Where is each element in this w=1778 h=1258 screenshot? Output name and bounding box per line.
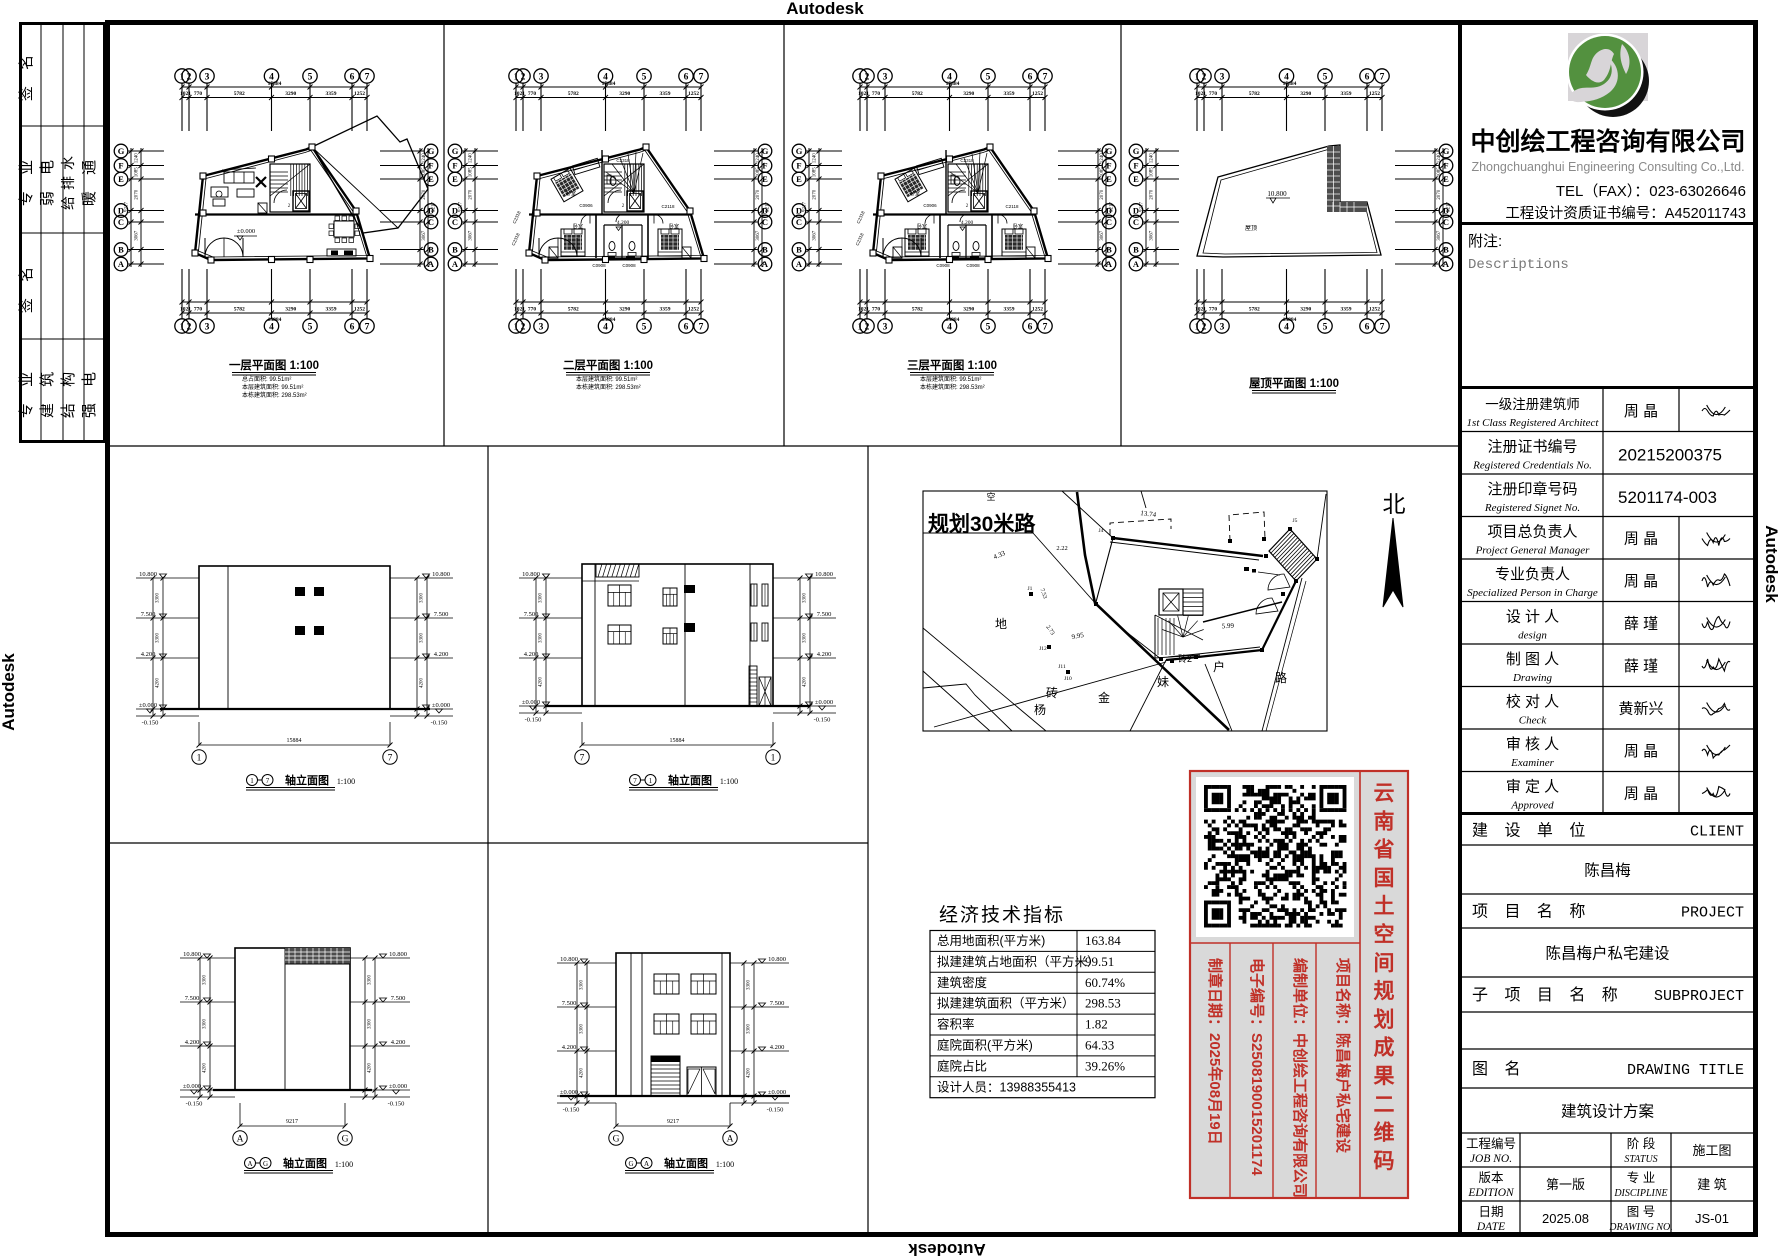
svg-text:周 晶: 周 晶 [1624,531,1658,548]
svg-text:北: 北 [1383,491,1406,517]
svg-text:1:100: 1:100 [337,777,355,786]
svg-text:3290: 3290 [619,91,630,97]
svg-text:4.200: 4.200 [617,220,630,226]
svg-text:10.800: 10.800 [1267,190,1287,198]
svg-text:5: 5 [642,73,647,83]
svg-text:3067: 3067 [135,230,140,241]
svg-text:99.51: 99.51 [1085,954,1114,969]
svg-text:DRAWING NO.: DRAWING NO. [1608,1222,1673,1233]
svg-text:5782: 5782 [568,307,579,313]
svg-text:7: 7 [633,777,637,785]
svg-text:陈昌梅户私宅建设: 陈昌梅户私宅建设 [1545,945,1669,963]
svg-text:7: 7 [266,777,270,785]
svg-text:本栋建筑面积: 298.53m²: 本栋建筑面积: 298.53m² [920,383,985,391]
svg-text:3067: 3067 [469,230,474,241]
svg-text:E: E [1133,174,1139,184]
svg-text:B: B [118,245,124,255]
svg-text:5782: 5782 [234,91,245,97]
svg-text:间: 间 [1374,952,1395,975]
svg-text:1240: 1240 [469,153,474,164]
svg-text:4200: 4200 [803,677,808,688]
svg-text:B: B [1443,245,1449,255]
svg-text:A: A [1133,259,1140,269]
svg-text:64.33: 64.33 [1085,1038,1114,1053]
svg-text:C2318: C2318 [616,158,630,163]
svg-text:2025.08: 2025.08 [1542,1211,1589,1226]
svg-text:本栋建筑面积: 298.53m²: 本栋建筑面积: 298.53m² [576,383,641,391]
svg-text:±0.000: ±0.000 [183,1083,201,1090]
svg-text:C2118: C2118 [662,204,675,209]
svg-text:3067: 3067 [1100,230,1105,241]
svg-text:1252: 1252 [688,91,699,97]
svg-text:Descriptions: Descriptions [1468,257,1569,273]
svg-text:卧室: 卧室 [1013,223,1023,230]
svg-text:5782: 5782 [912,307,923,313]
svg-text:E: E [428,174,434,184]
svg-text:C0908: C0908 [966,263,980,268]
svg-text:4200: 4200 [539,677,544,688]
svg-text:轴立面图: 轴立面图 [664,1156,708,1170]
svg-text:1st Class Registered Architect: 1st Class Registered Architect [1467,417,1600,429]
svg-text:Autodesk: Autodesk [908,1240,986,1258]
svg-text:一级注册建筑师: 一级注册建筑师 [1485,397,1580,412]
svg-text:码: 码 [1374,1150,1395,1173]
svg-text:Project General Manager: Project General Manager [1475,545,1591,557]
svg-text:-0.150: -0.150 [388,1101,405,1108]
svg-text:PROJECT: PROJECT [1681,905,1744,922]
svg-text:4: 4 [269,323,274,333]
svg-text:298.53: 298.53 [1085,996,1121,1011]
svg-text:4.200: 4.200 [961,220,974,226]
svg-text:E: E [796,174,802,184]
svg-text:专 业: 专 业 [18,366,35,418]
svg-text:5: 5 [1323,73,1328,83]
svg-text:3300: 3300 [156,633,161,644]
svg-text:6: 6 [1365,73,1370,83]
svg-text:轴立面图: 轴立面图 [668,773,712,787]
svg-text:design: design [1518,630,1547,642]
svg-text:3: 3 [539,323,544,333]
svg-text:C: C [1106,217,1112,227]
svg-text:总占面积: 99.51m²: 总占面积: 99.51m² [242,375,291,383]
svg-text:J1: J1 [1028,586,1033,592]
svg-text:1021: 1021 [514,91,525,97]
svg-text:4200: 4200 [203,1063,208,1074]
svg-text:3300: 3300 [747,980,752,991]
svg-text:-0.150: -0.150 [525,717,542,724]
svg-text:C2318: C2318 [960,158,974,163]
svg-text:-0.150: -0.150 [431,720,448,727]
svg-text:C: C [452,217,458,227]
svg-text:STATUS: STATUS [1624,1154,1657,1165]
svg-text:2: 2 [1202,323,1207,333]
svg-text:DISCIPLINE: DISCIPLINE [1613,1188,1667,1199]
svg-text:J10: J10 [1064,676,1072,682]
svg-text:签 名: 签 名 [18,261,35,313]
svg-text:结 构: 结 构 [60,366,77,418]
svg-text:F: F [1133,161,1138,171]
svg-text:2070: 2070 [469,189,474,200]
svg-text:陈昌梅: 陈昌梅 [1584,862,1631,880]
svg-text:G: G [263,1160,268,1168]
svg-text:给排水: 给排水 [60,150,76,210]
svg-text:庭院面积(平方米): 庭院面积(平方米) [937,1038,1033,1053]
svg-text:项目总负责人: 项目总负责人 [1487,524,1577,541]
svg-text:7: 7 [1380,73,1385,83]
svg-text:±0.000: ±0.000 [237,228,255,235]
svg-text:注册证书编号: 注册证书编号 [1487,439,1577,456]
svg-text:770: 770 [872,307,881,313]
svg-text:屋顶: 屋顶 [1245,225,1257,232]
svg-text:4200: 4200 [747,1068,752,1079]
svg-text:-0.150: -0.150 [814,717,831,724]
svg-text:Check: Check [1519,715,1548,727]
svg-text:果: 果 [1374,1065,1395,1088]
svg-text:5: 5 [642,323,647,333]
svg-text:3067: 3067 [813,230,818,241]
svg-text:1021: 1021 [180,91,191,97]
svg-text:2070: 2070 [1150,189,1155,200]
svg-text:1021: 1021 [858,307,869,313]
svg-text:2070: 2070 [1100,189,1105,200]
svg-text:D: D [1133,206,1139,216]
svg-text:妹: 妹 [1157,675,1169,689]
svg-text:3359: 3359 [1004,91,1015,97]
svg-text:南: 南 [1374,809,1395,833]
svg-text:1252: 1252 [1369,307,1380,313]
svg-text:1252: 1252 [354,91,365,97]
svg-text:1: 1 [250,777,254,785]
svg-text:4.200: 4.200 [185,1039,200,1046]
svg-text:电子编号：S2508190015201174: 电子编号：S2508190015201174 [1248,958,1266,1176]
svg-text:D: D [118,206,124,216]
svg-text:6: 6 [684,323,689,333]
svg-text:2: 2 [521,73,526,83]
svg-text:7: 7 [580,753,585,763]
svg-text:A: A [796,259,803,269]
svg-text:F: F [1106,161,1111,171]
svg-text:3: 3 [539,73,544,83]
svg-text:9217: 9217 [667,1119,679,1125]
svg-text:7.500: 7.500 [434,611,449,618]
svg-text:工程编号: 工程编号 [1466,1136,1516,1151]
svg-text:土: 土 [1374,895,1395,918]
svg-text:7: 7 [1380,323,1385,333]
svg-text:薛 瑾: 薛 瑾 [1624,658,1658,675]
svg-text:轴立面图: 轴立面图 [285,773,329,787]
svg-text:弱 电: 弱 电 [39,154,56,206]
svg-text:3300: 3300 [156,593,161,604]
svg-text:3290: 3290 [1300,307,1311,313]
svg-text:9217: 9217 [459,202,464,213]
svg-text:A: A [237,1134,244,1144]
svg-text:Registered Credentials No.: Registered Credentials No. [1472,460,1592,472]
svg-text:±0.000: ±0.000 [815,699,833,706]
svg-text:F: F [428,161,433,171]
svg-text:杨: 杨 [1034,702,1046,717]
svg-text:7: 7 [365,323,370,333]
svg-text:周 晶: 周 晶 [1624,573,1658,590]
svg-text:地: 地 [995,617,1007,631]
svg-text:1085: 1085 [469,167,474,178]
svg-text:4200: 4200 [368,1063,373,1074]
svg-text:9217: 9217 [766,202,771,213]
svg-text:3: 3 [883,73,888,83]
svg-text:卧室: 卧室 [910,190,920,197]
svg-text:9217: 9217 [286,1119,298,1125]
svg-text:5782: 5782 [234,307,245,313]
svg-text:J12: J12 [1039,646,1047,652]
svg-text:5: 5 [308,323,313,333]
svg-text:1252: 1252 [688,307,699,313]
svg-text:3359: 3359 [326,307,337,313]
svg-text:JOB NO.: JOB NO. [1470,1153,1512,1165]
svg-text:3290: 3290 [963,307,974,313]
svg-text:空: 空 [1374,923,1395,947]
svg-text:6: 6 [1028,73,1033,83]
svg-text:本层建筑面积: 99.51m²: 本层建筑面积: 99.51m² [920,375,981,383]
svg-text:3300: 3300 [747,1024,752,1035]
svg-text:7: 7 [365,73,370,83]
svg-text:G: G [118,146,125,156]
svg-text:3300: 3300 [580,1024,585,1035]
svg-text:60.74%: 60.74% [1085,975,1125,990]
svg-text:编制单位：中创绘工程咨询有限公司: 编制单位：中创绘工程咨询有限公司 [1291,958,1309,1198]
svg-text:3290: 3290 [285,307,296,313]
svg-text:3067: 3067 [1150,230,1155,241]
svg-text:1:100: 1:100 [716,1160,734,1169]
svg-text:Examiner: Examiner [1510,757,1554,769]
svg-text:C0906: C0906 [579,203,593,208]
svg-text:10.800: 10.800 [815,571,833,578]
svg-text:1085: 1085 [1150,167,1155,178]
svg-text:周 晶: 周 晶 [1624,786,1658,803]
svg-text:1240: 1240 [1100,153,1105,164]
svg-text:工程设计资质证书编号：A452011743: 工程设计资质证书编号：A452011743 [1505,205,1746,222]
svg-text:B: B [1106,245,1112,255]
svg-text:卧室: 卧室 [566,190,576,197]
svg-text:建 筑: 建 筑 [39,366,56,418]
svg-text:周 晶: 周 晶 [1624,743,1658,760]
svg-text:15884: 15884 [287,738,302,744]
svg-text:3300: 3300 [580,980,585,991]
svg-text:10.800: 10.800 [183,951,201,958]
svg-text:2.22: 2.22 [1056,545,1067,552]
svg-text:1021: 1021 [180,307,191,313]
svg-text:J4: J4 [1099,528,1104,534]
svg-text:二层平面图 1:100: 二层平面图 1:100 [563,358,653,372]
svg-text:SUBPROJECT: SUBPROJECT [1654,988,1744,1005]
svg-text:7.500: 7.500 [185,995,200,1002]
svg-text:阶 段: 阶 段 [1627,1136,1655,1151]
svg-text:-0.150: -0.150 [563,1107,580,1114]
svg-text:15884: 15884 [268,317,282,323]
svg-text:770: 770 [194,307,203,313]
svg-text:制章日期：2025年08月19日: 制章日期：2025年08月19日 [1206,958,1224,1145]
svg-text:F: F [1443,161,1448,171]
svg-text:版本: 版本 [1478,1171,1504,1185]
svg-text:5.99: 5.99 [1221,622,1234,631]
svg-text:金: 金 [1098,690,1110,705]
svg-text:本层建筑面积: 99.51m²: 本层建筑面积: 99.51m² [576,375,637,383]
svg-text:9217: 9217 [125,202,130,213]
svg-text:卧室: 卧室 [669,223,679,230]
svg-text:6: 6 [684,73,689,83]
svg-text:划: 划 [1374,1008,1395,1031]
svg-text:C0908: C0908 [936,263,950,268]
svg-text:9217: 9217 [1140,202,1145,213]
svg-text:校 对 人: 校 对 人 [1506,694,1559,711]
svg-text:维: 维 [1374,1121,1395,1145]
svg-text:黄新兴: 黄新兴 [1618,701,1663,718]
svg-text:G: G [762,146,769,156]
svg-text:图 号: 图 号 [1627,1205,1655,1219]
svg-text:2070: 2070 [756,189,761,200]
svg-text:2: 2 [187,73,192,83]
svg-text:空: 空 [986,491,995,502]
svg-text:1085: 1085 [135,167,140,178]
svg-text:C0908: C0908 [592,263,606,268]
svg-text:CLIENT: CLIENT [1690,824,1744,841]
svg-text:A: A [727,1134,734,1144]
svg-text:15884: 15884 [946,81,960,87]
svg-text:A: A [428,259,435,269]
svg-text:路: 路 [1275,670,1287,685]
svg-text:G: G [452,146,459,156]
svg-text:Autodesk: Autodesk [786,0,864,18]
svg-text:拟建建筑面积（平方米）: 拟建建筑面积（平方米） [937,996,1075,1011]
svg-text:G: G [342,1134,349,1144]
svg-text:2: 2 [521,323,526,333]
svg-text:3300: 3300 [368,975,373,986]
svg-text:1: 1 [649,777,653,785]
svg-text:专业负责人: 专业负责人 [1495,566,1570,583]
svg-text:暖 通: 暖 通 [81,154,98,206]
svg-text:5782: 5782 [912,91,923,97]
svg-text:总用地面积(平方米): 总用地面积(平方米) [937,933,1045,948]
svg-text:砖: 砖 [1046,685,1058,700]
svg-text:3: 3 [1220,323,1225,333]
svg-text:卧室: 卧室 [917,223,927,230]
svg-text:屋顶平面图 1:100: 屋顶平面图 1:100 [1249,376,1339,390]
svg-text:C: C [428,217,434,227]
svg-text:C0908: C0908 [622,263,636,268]
svg-text:G: G [796,146,803,156]
svg-text:1240: 1240 [1437,153,1442,164]
svg-text:强 电: 强 电 [81,366,98,418]
svg-text:5: 5 [986,73,991,83]
svg-text:5782: 5782 [1249,307,1260,313]
svg-text:10.800: 10.800 [560,956,578,963]
svg-text:4.200: 4.200 [562,1044,577,1051]
svg-text:二: 二 [1374,1093,1395,1116]
svg-text:轴立面图: 轴立面图 [283,1156,327,1170]
svg-text:1240: 1240 [135,153,140,164]
svg-text:3359: 3359 [1004,307,1015,313]
svg-text:3290: 3290 [1300,91,1311,97]
svg-text:Specialized Person in Charge: Specialized Person in Charge [1467,587,1598,599]
svg-text:3359: 3359 [326,91,337,97]
svg-text:-0.150: -0.150 [186,1101,203,1108]
svg-text:建筑密度: 建筑密度 [937,975,988,990]
svg-text:F: F [796,161,801,171]
svg-text:附注:: 附注: [1468,233,1502,250]
svg-text:Autodesk: Autodesk [0,653,18,731]
svg-text:TEL（FAX）：023-63026646: TEL（FAX）：023-63026646 [1556,183,1746,200]
svg-text:国: 国 [1374,867,1395,890]
svg-text:E: E [1443,174,1449,184]
svg-text:2070: 2070 [1437,189,1442,200]
svg-text:1021: 1021 [514,307,525,313]
svg-text:E: E [118,174,124,184]
svg-text:3: 3 [883,323,888,333]
svg-text:1252: 1252 [1032,307,1043,313]
svg-text:1.82: 1.82 [1085,1017,1108,1032]
svg-text:2: 2 [865,73,870,83]
svg-text:本层建筑面积: 99.51m²: 本层建筑面积: 99.51m² [242,383,303,391]
svg-text:砖2: 砖2 [1178,653,1192,664]
svg-text:15884: 15884 [268,81,282,87]
svg-text:本栋建筑面积: 298.53m²: 本栋建筑面积: 298.53m² [242,391,307,399]
svg-text:Approved: Approved [1510,800,1554,812]
svg-text:7.500: 7.500 [391,995,406,1002]
svg-text:设计人员：13988355413: 设计人员：13988355413 [937,1079,1076,1094]
svg-text:制 图 人: 制 图 人 [1506,651,1559,668]
svg-text:户: 户 [1213,659,1225,674]
svg-text:2: 2 [865,323,870,333]
svg-text:D: D [796,206,802,216]
svg-text:专 业: 专 业 [18,154,35,206]
svg-text:3290: 3290 [285,91,296,97]
svg-text:中创绘工程咨询有限公司: 中创绘工程咨询有限公司 [1470,127,1745,156]
svg-text:1:100: 1:100 [335,1160,353,1169]
svg-text:5: 5 [1323,323,1328,333]
svg-text:1085: 1085 [1100,167,1105,178]
svg-text:4.200: 4.200 [770,1044,785,1051]
svg-text:JS-01: JS-01 [1695,1211,1729,1226]
svg-text:3300: 3300 [368,1019,373,1030]
svg-text:签 名: 签 名 [18,49,35,101]
svg-text:3: 3 [1220,73,1225,83]
svg-text:1252: 1252 [354,307,365,313]
svg-text:规划30米路: 规划30米路 [928,512,1036,536]
svg-text:经济技术指标: 经济技术指标 [939,904,1065,926]
svg-text:3300: 3300 [203,1019,208,1030]
svg-text:A: A [452,259,459,269]
svg-text:3300: 3300 [203,975,208,986]
svg-text:6: 6 [1028,323,1033,333]
svg-text:3359: 3359 [1341,91,1352,97]
svg-text:163.84: 163.84 [1085,933,1121,948]
svg-text:省: 省 [1373,839,1395,862]
svg-text:EDITION: EDITION [1467,1187,1515,1199]
svg-text:6: 6 [350,73,355,83]
svg-text:子 项 目 名 称: 子 项 目 名 称 [1472,986,1624,1004]
svg-text:7.500: 7.500 [770,1000,785,1007]
svg-text:C: C [762,217,768,227]
svg-text:G: G [1106,146,1113,156]
svg-text:注册印章号码: 注册印章号码 [1487,480,1577,498]
svg-text:10.800: 10.800 [432,571,450,578]
svg-text:三层平面图 1:100: 三层平面图 1:100 [907,358,997,372]
svg-text:DATE: DATE [1476,1221,1505,1233]
svg-text:3300: 3300 [539,593,544,604]
svg-text:-0.150: -0.150 [767,1107,784,1114]
svg-text:周 晶: 周 晶 [1624,403,1658,420]
svg-text:1252: 1252 [1032,91,1043,97]
svg-text:6: 6 [1365,323,1370,333]
svg-text:770: 770 [528,91,537,97]
